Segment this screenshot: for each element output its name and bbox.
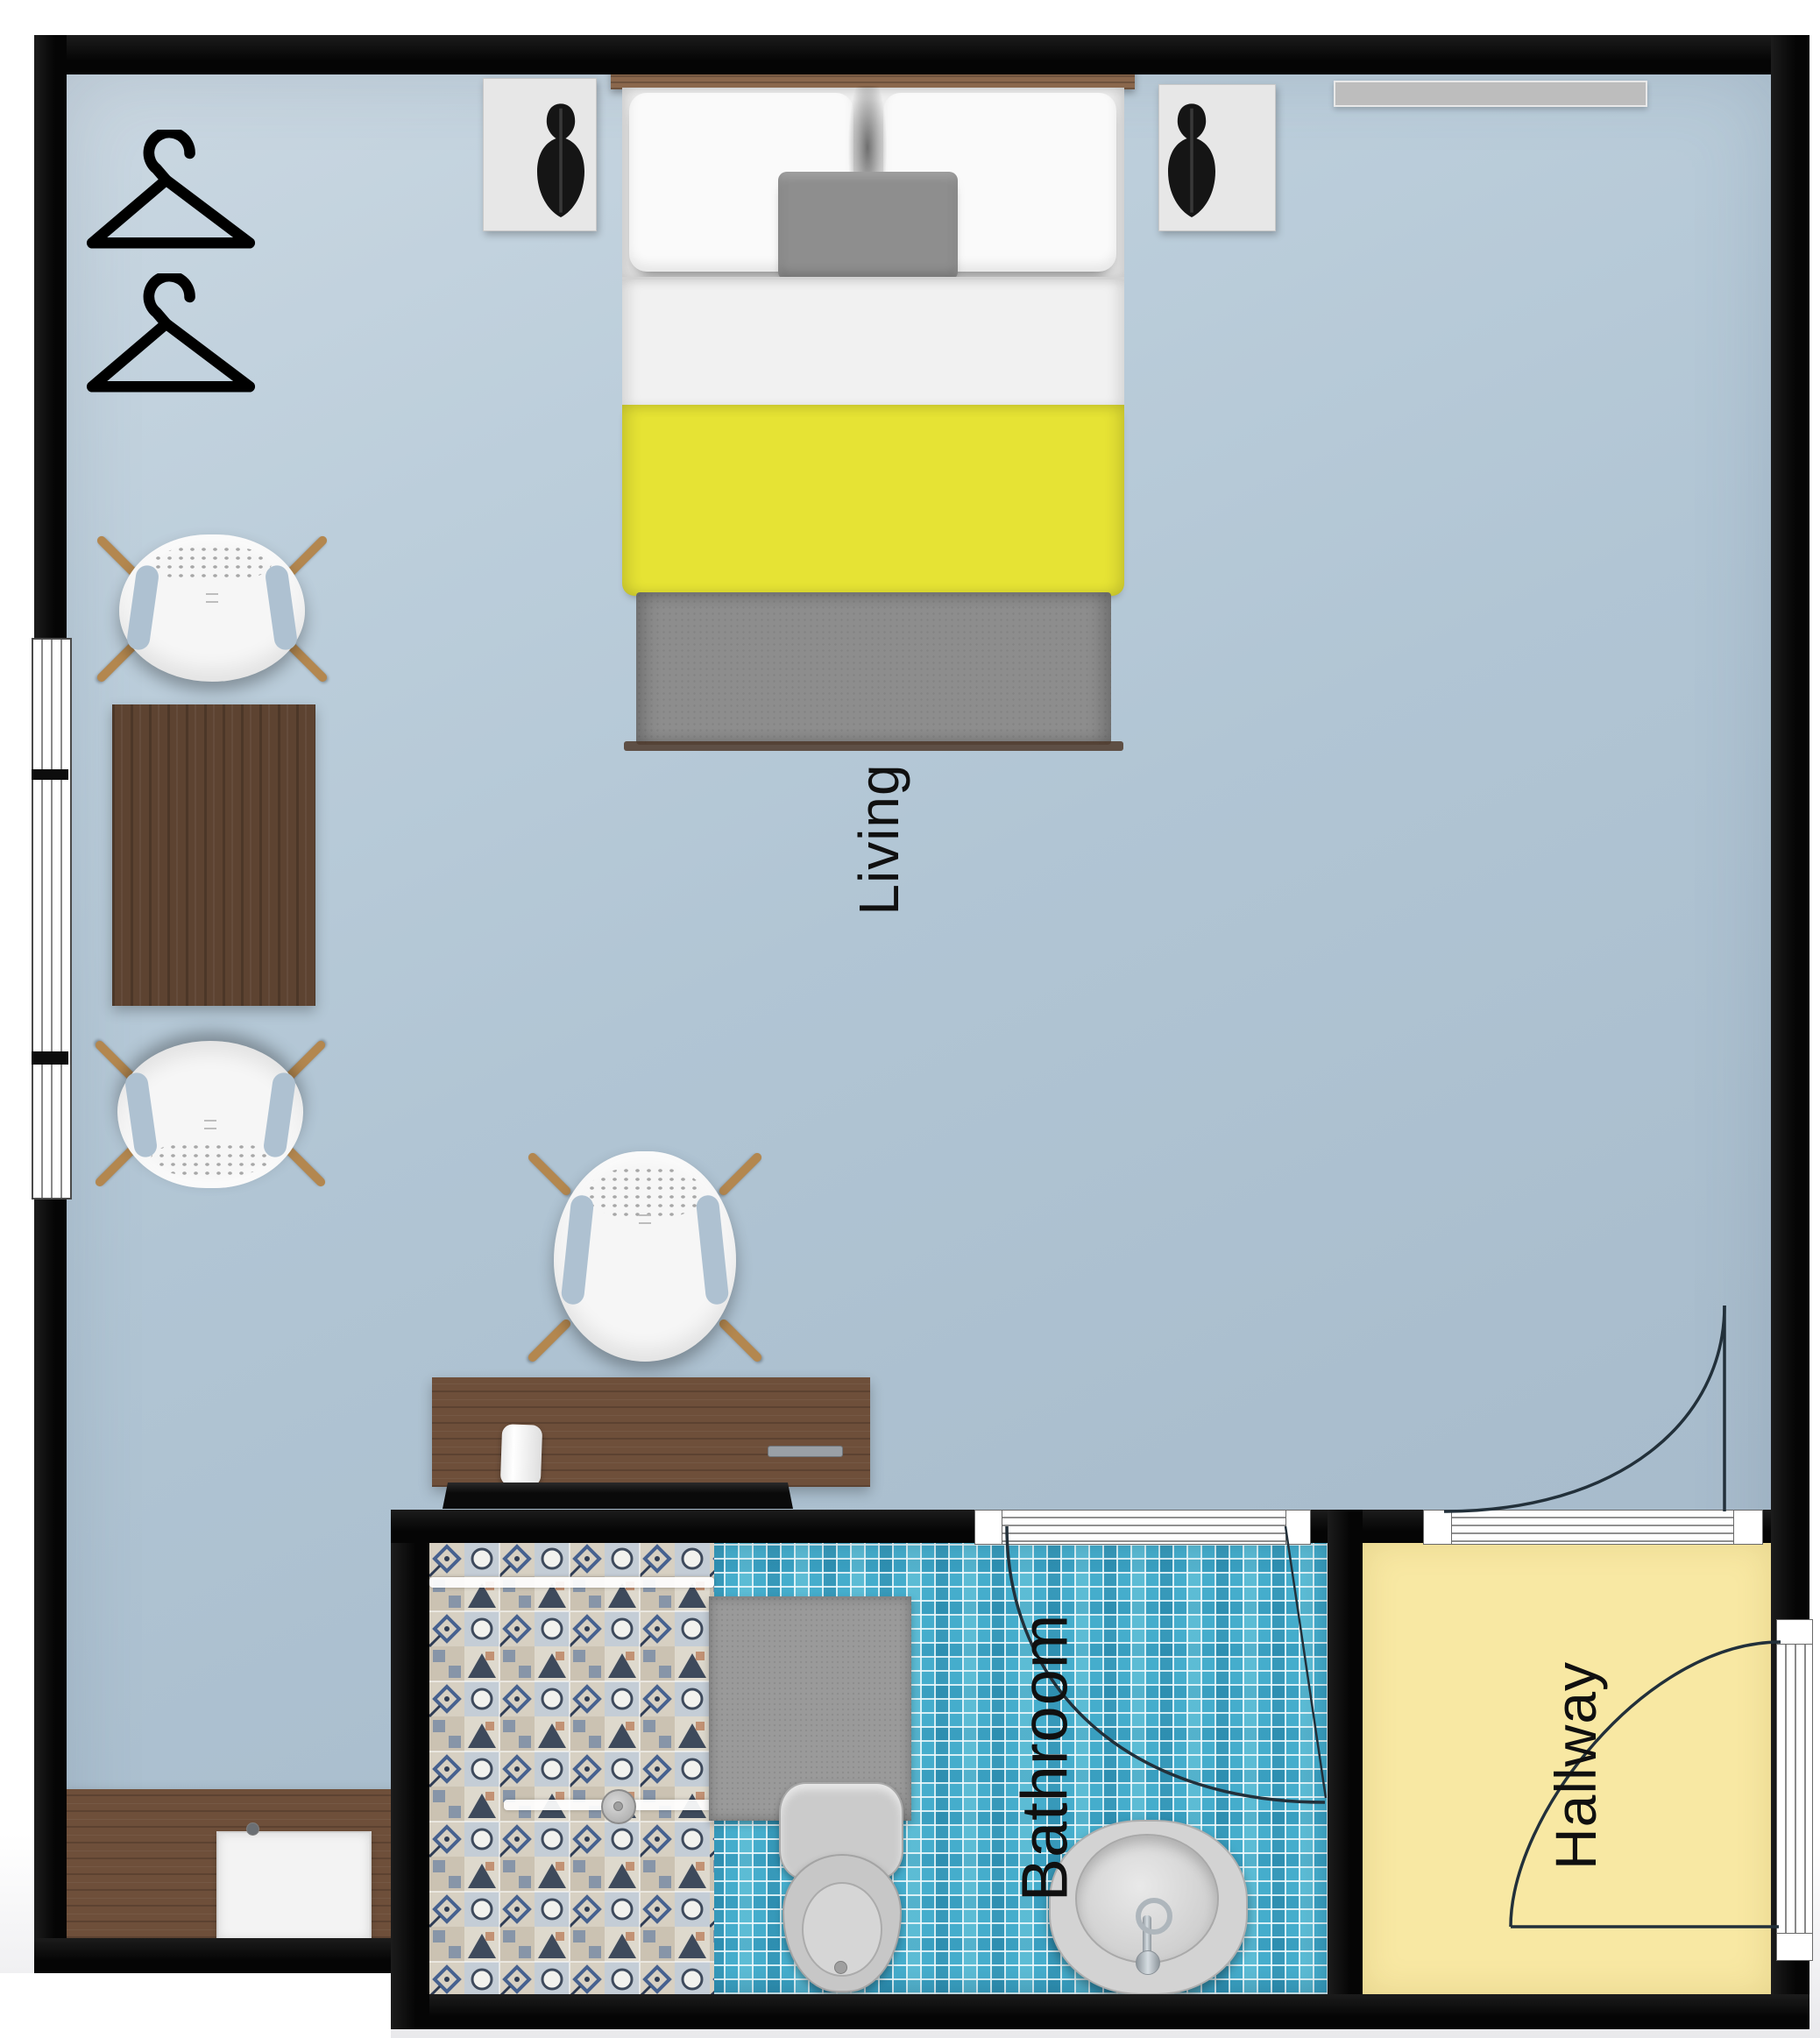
floorplan-canvas: Living Bathroom Hallway bbox=[0, 0, 1820, 2038]
living-door-arc bbox=[1444, 1306, 1724, 1511]
bathroom-door-leaf bbox=[1285, 1526, 1326, 1798]
room-label-bathroom: Bathroom bbox=[1008, 1614, 1082, 1902]
room-label-living: Living bbox=[846, 763, 911, 915]
room-label-hallway: Hallway bbox=[1542, 1661, 1609, 1870]
